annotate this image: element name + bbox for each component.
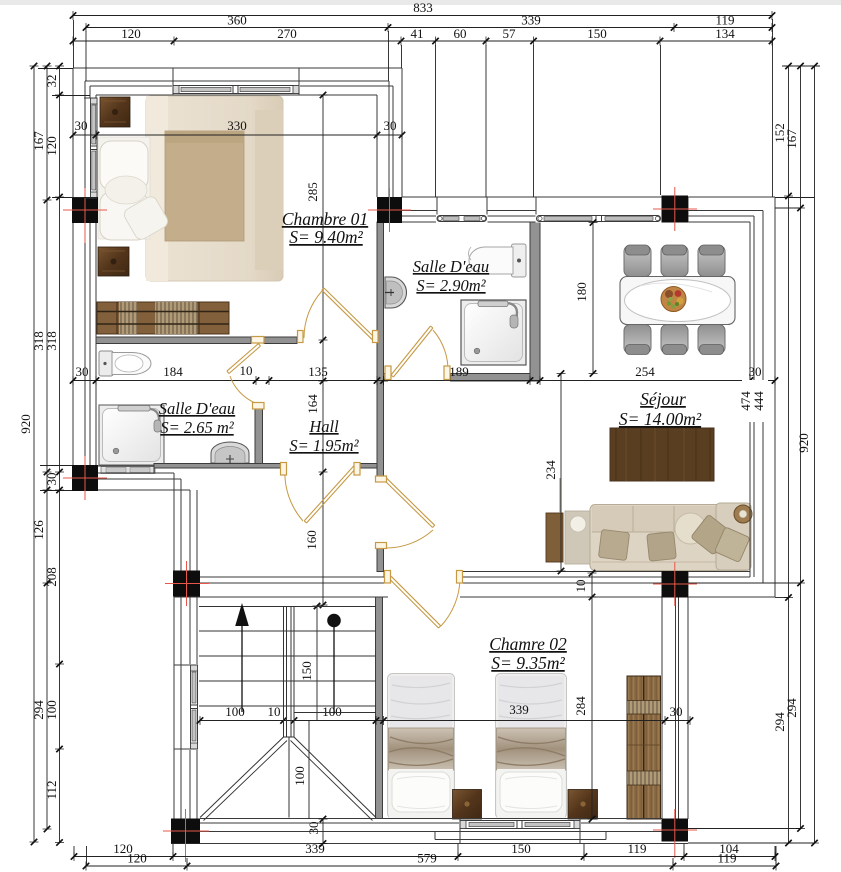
svg-text:330: 330 bbox=[227, 118, 247, 133]
svg-text:360: 360 bbox=[227, 13, 247, 28]
svg-text:41: 41 bbox=[411, 26, 424, 41]
svg-text:10: 10 bbox=[240, 363, 253, 378]
svg-text:164: 164 bbox=[305, 394, 320, 414]
svg-text:208: 208 bbox=[44, 567, 59, 587]
svg-text:S= 1.95m²: S= 1.95m² bbox=[289, 436, 359, 455]
svg-text:254: 254 bbox=[635, 364, 655, 379]
svg-text:S= 14.00m²: S= 14.00m² bbox=[619, 409, 702, 429]
svg-text:318: 318 bbox=[44, 331, 59, 351]
svg-text:100: 100 bbox=[44, 700, 59, 720]
svg-text:57: 57 bbox=[503, 26, 517, 41]
svg-text:Séjour: Séjour bbox=[640, 389, 686, 409]
svg-text:284: 284 bbox=[573, 696, 588, 716]
svg-text:Chamre 02: Chamre 02 bbox=[489, 634, 567, 654]
svg-text:150: 150 bbox=[299, 661, 314, 681]
svg-text:30: 30 bbox=[384, 118, 397, 133]
svg-text:120: 120 bbox=[127, 851, 147, 866]
svg-text:339: 339 bbox=[521, 13, 541, 28]
svg-text:119: 119 bbox=[717, 851, 736, 866]
svg-text:339: 339 bbox=[305, 841, 325, 856]
svg-text:10: 10 bbox=[573, 580, 588, 593]
svg-text:135: 135 bbox=[308, 364, 328, 379]
svg-text:833: 833 bbox=[413, 0, 433, 15]
svg-text:294: 294 bbox=[784, 698, 799, 718]
svg-text:184: 184 bbox=[163, 364, 183, 379]
svg-text:30: 30 bbox=[75, 118, 88, 133]
svg-text:Chambre 01: Chambre 01 bbox=[282, 209, 368, 229]
svg-text:126: 126 bbox=[31, 520, 46, 540]
svg-text:S= 2.90m²: S= 2.90m² bbox=[416, 276, 486, 295]
svg-text:270: 270 bbox=[277, 26, 297, 41]
svg-text:30: 30 bbox=[749, 364, 762, 379]
svg-text:Hall: Hall bbox=[308, 417, 339, 436]
svg-text:444: 444 bbox=[751, 391, 766, 411]
svg-text:285: 285 bbox=[305, 182, 320, 202]
svg-text:60: 60 bbox=[454, 26, 467, 41]
svg-text:167: 167 bbox=[784, 129, 799, 149]
svg-text:30: 30 bbox=[670, 704, 683, 719]
svg-text:120: 120 bbox=[121, 26, 141, 41]
svg-text:120: 120 bbox=[44, 136, 59, 156]
svg-text:150: 150 bbox=[511, 841, 531, 856]
svg-text:579: 579 bbox=[417, 851, 437, 866]
svg-text:S= 2.65 m²: S= 2.65 m² bbox=[160, 418, 234, 437]
svg-text:150: 150 bbox=[587, 26, 607, 41]
svg-text:160: 160 bbox=[304, 530, 319, 550]
svg-text:Salle D'eau: Salle D'eau bbox=[413, 257, 489, 276]
svg-text:30: 30 bbox=[76, 364, 89, 379]
svg-text:119: 119 bbox=[627, 841, 646, 856]
svg-text:100: 100 bbox=[292, 766, 307, 786]
svg-text:920: 920 bbox=[18, 414, 33, 434]
svg-text:180: 180 bbox=[574, 282, 589, 302]
svg-text:920: 920 bbox=[796, 433, 811, 453]
svg-text:134: 134 bbox=[715, 26, 735, 41]
svg-text:30: 30 bbox=[306, 822, 321, 835]
svg-text:339: 339 bbox=[509, 702, 529, 717]
svg-text:189: 189 bbox=[449, 364, 469, 379]
svg-text:S= 9.35m²: S= 9.35m² bbox=[491, 653, 565, 673]
svg-text:234: 234 bbox=[543, 460, 558, 480]
svg-text:Salle D'eau: Salle D'eau bbox=[159, 399, 235, 418]
svg-text:112: 112 bbox=[44, 780, 59, 799]
svg-text:30: 30 bbox=[44, 473, 59, 486]
svg-text:S= 9.40m²: S= 9.40m² bbox=[289, 227, 363, 247]
svg-text:32: 32 bbox=[44, 75, 59, 88]
